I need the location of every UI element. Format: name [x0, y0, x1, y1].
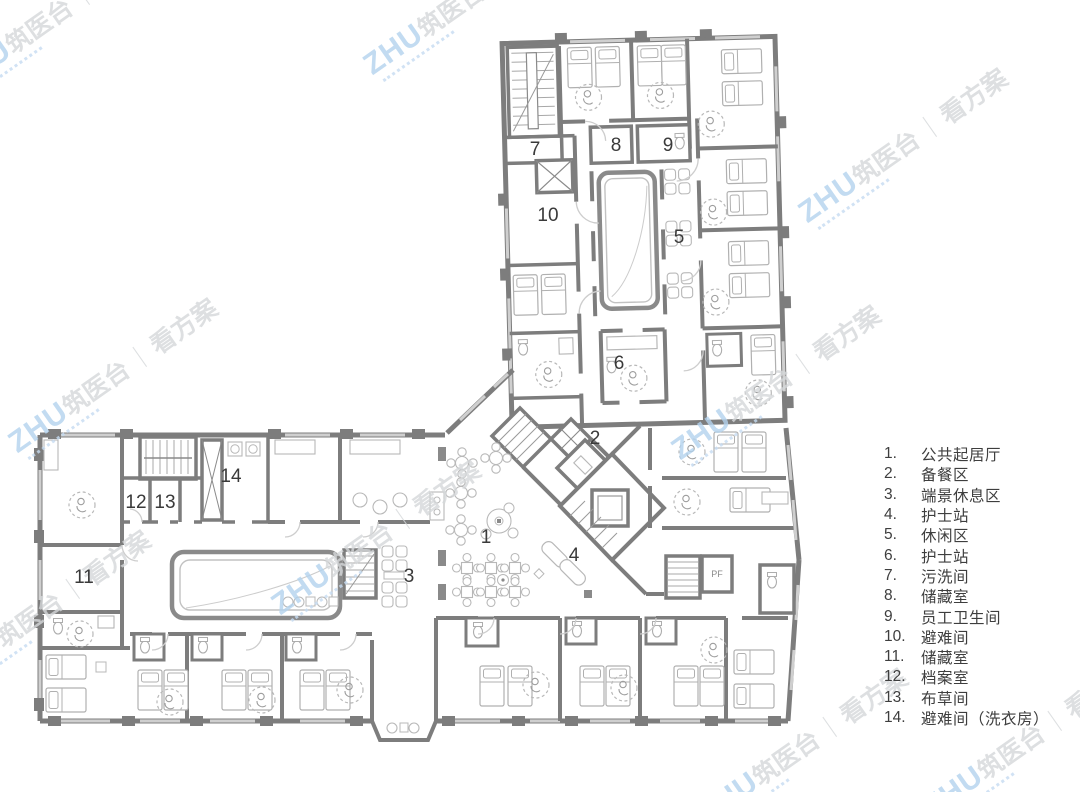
- legend-item-number: 11.: [884, 648, 921, 666]
- legend-item-label: 档案室: [921, 666, 969, 688]
- legend-item: 5.休闲区: [884, 525, 1049, 545]
- legend-item-label: 备餐区: [921, 463, 969, 485]
- staircase-left-wing: [140, 437, 196, 479]
- floor-plan-page: ZHU筑医台｜看方案ZHU筑医台｜看方案ZHU筑医台｜看方案ZHU筑医台｜看方案…: [0, 0, 1080, 792]
- room-8-storage: [590, 126, 632, 163]
- staircase-top: [507, 46, 559, 137]
- legend-item-label: 污洗间: [921, 565, 969, 587]
- legend-item-number: 2.: [884, 465, 921, 483]
- legend-item: 4.护士站: [884, 505, 1049, 525]
- legend-item-number: 7.: [884, 567, 921, 585]
- legend-item: 6.护士站: [884, 545, 1049, 565]
- legend-item-number: 6.: [884, 547, 921, 565]
- legend-item-label: 端景休息区: [921, 484, 1001, 506]
- legend-item-label: 公共起居厅: [921, 443, 1001, 465]
- nurse-station-4: [534, 539, 592, 598]
- laundry-room-14: [222, 437, 268, 522]
- legend-item-number: 14.: [884, 709, 921, 727]
- legend-item-label: 布草间: [921, 687, 969, 709]
- atrium-top-wing: [598, 172, 658, 309]
- legend-item-label: 储藏室: [921, 646, 969, 668]
- legend-item-number: 1.: [884, 445, 921, 463]
- duct-shaft: [202, 440, 222, 520]
- atrium-bottom-wing: [172, 552, 340, 618]
- legend-item-label: 储藏室: [921, 585, 969, 607]
- legend-item: 8.储藏室: [884, 586, 1049, 606]
- legend-item-number: 5.: [884, 526, 921, 544]
- legend-item: 9.员工卫生间: [884, 606, 1049, 626]
- top-wing: [494, 27, 794, 427]
- legend-item: 14.避难间（洗衣房）: [884, 708, 1049, 728]
- legend-item: 2.备餐区: [884, 464, 1049, 484]
- legend-item-label: 护士站: [921, 504, 969, 526]
- legend-item-label: 休闲区: [921, 524, 969, 546]
- legend-item-label: 避难间（洗衣房）: [921, 707, 1049, 729]
- legend-item-number: 9.: [884, 608, 921, 626]
- elevator-top: [536, 160, 573, 193]
- legend-item-number: 8.: [884, 587, 921, 605]
- legend-item: 12.档案室: [884, 667, 1049, 687]
- legend-item-label: 护士站: [921, 545, 969, 567]
- legend-item-number: 10.: [884, 628, 921, 646]
- staircase-mid: [344, 550, 376, 598]
- closet-pf: [702, 556, 732, 592]
- legend-item-number: 13.: [884, 689, 921, 707]
- legend-item: 10.避难间: [884, 627, 1049, 647]
- legend: 1.公共起居厅2.备餐区3.端景休息区4.护士站5.休闲区6.护士站7.污洗间8…: [884, 444, 1049, 728]
- legend-item: 11.储藏室: [884, 647, 1049, 667]
- staircase-lower: [666, 556, 700, 598]
- legend-item-number: 12.: [884, 668, 921, 686]
- legend-item-label: 避难间: [921, 626, 969, 648]
- legend-item-label: 员工卫生间: [921, 606, 1001, 628]
- legend-item: 7.污洗间: [884, 566, 1049, 586]
- legend-item-number: 3.: [884, 486, 921, 504]
- bay-window: [372, 721, 436, 740]
- living-hall-1: [430, 443, 530, 607]
- legend-item: 13.布草间: [884, 688, 1049, 708]
- legend-item: 3.端景休息区: [884, 485, 1049, 505]
- legend-item-number: 4.: [884, 506, 921, 524]
- rest-area-3: [382, 546, 407, 607]
- legend-item: 1.公共起居厅: [884, 444, 1049, 464]
